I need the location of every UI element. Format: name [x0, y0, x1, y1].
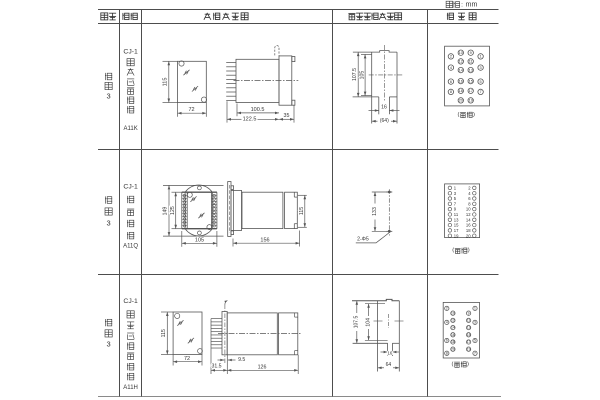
- svg-text:15: 15: [469, 79, 473, 83]
- svg-text:107.5: 107.5: [352, 68, 358, 81]
- svg-text:3: 3: [474, 321, 476, 325]
- svg-text:3: 3: [107, 219, 111, 228]
- svg-text:A11K: A11K: [123, 126, 137, 132]
- svg-text:1: 1: [480, 55, 482, 59]
- svg-text:9.5: 9.5: [238, 357, 245, 363]
- svg-text:10: 10: [466, 207, 471, 212]
- svg-text:(: (: [458, 112, 460, 118]
- svg-text::: :: [461, 1, 463, 8]
- svg-text:CJ-1: CJ-1: [123, 49, 138, 56]
- svg-text:19: 19: [469, 99, 473, 103]
- svg-text:115: 115: [162, 78, 168, 87]
- svg-text:125: 125: [170, 206, 176, 215]
- svg-text:(: (: [452, 248, 454, 254]
- svg-text:A11Q: A11Q: [123, 244, 138, 250]
- svg-text:CJ-1: CJ-1: [123, 184, 138, 191]
- svg-text:100.5: 100.5: [251, 107, 265, 113]
- svg-text:3: 3: [107, 340, 111, 349]
- svg-text:3: 3: [107, 91, 111, 100]
- svg-text:5: 5: [480, 80, 482, 84]
- svg-text:156: 156: [260, 238, 269, 244]
- svg-text:14: 14: [466, 217, 471, 222]
- svg-text:4: 4: [446, 321, 448, 325]
- svg-text:10: 10: [459, 51, 463, 55]
- svg-text:7: 7: [474, 351, 476, 355]
- svg-text:105: 105: [195, 238, 204, 244]
- svg-text:9: 9: [468, 311, 470, 315]
- svg-text:2: 2: [446, 307, 448, 311]
- svg-text:18: 18: [459, 89, 463, 93]
- svg-text:5: 5: [474, 339, 476, 343]
- svg-text:9: 9: [470, 51, 472, 55]
- svg-text:1: 1: [474, 307, 476, 311]
- svg-text:): ): [473, 112, 475, 118]
- svg-text:15: 15: [454, 223, 459, 228]
- svg-text:2: 2: [450, 55, 452, 59]
- svg-text:16: 16: [466, 223, 471, 228]
- svg-text:12: 12: [459, 60, 463, 64]
- svg-text:133: 133: [372, 207, 378, 216]
- svg-text:20: 20: [459, 99, 463, 103]
- svg-text:13: 13: [467, 326, 471, 330]
- svg-text:3: 3: [480, 66, 482, 70]
- svg-text:7: 7: [480, 90, 482, 94]
- svg-text:149: 149: [163, 207, 169, 216]
- svg-text:20: 20: [466, 233, 471, 238]
- svg-text:17: 17: [467, 340, 471, 344]
- svg-text:104: 104: [365, 318, 371, 327]
- svg-text:20: 20: [451, 347, 455, 351]
- svg-text:8: 8: [450, 90, 452, 94]
- svg-text:): ): [468, 248, 470, 254]
- svg-text:14: 14: [459, 68, 463, 72]
- svg-text:(64): (64): [380, 118, 389, 124]
- svg-text:16: 16: [451, 333, 455, 337]
- svg-text:11: 11: [454, 212, 459, 217]
- svg-text:122.5: 122.5: [243, 116, 257, 122]
- svg-text:8: 8: [446, 351, 448, 355]
- svg-text:2-Φ5: 2-Φ5: [357, 236, 369, 242]
- svg-text:18: 18: [466, 228, 471, 233]
- svg-text:12: 12: [466, 212, 471, 217]
- svg-text:17: 17: [454, 228, 459, 233]
- svg-text:4: 4: [450, 66, 452, 70]
- svg-text:): ): [467, 361, 469, 367]
- svg-text:A11H: A11H: [123, 385, 138, 391]
- svg-text:115: 115: [161, 329, 167, 337]
- svg-text:12: 12: [451, 319, 455, 323]
- svg-text:64: 64: [386, 362, 392, 368]
- svg-text:72: 72: [184, 356, 190, 362]
- svg-text:13: 13: [469, 68, 473, 72]
- svg-text:19: 19: [454, 233, 459, 238]
- svg-text:6: 6: [450, 80, 452, 84]
- svg-text:11: 11: [467, 319, 471, 323]
- svg-text:(: (: [452, 361, 454, 367]
- svg-text:126: 126: [258, 365, 267, 371]
- svg-text:16: 16: [459, 79, 463, 83]
- svg-text:115: 115: [299, 207, 305, 215]
- svg-text:10: 10: [451, 311, 455, 315]
- svg-text:mm: mm: [466, 1, 478, 8]
- svg-text:19: 19: [467, 347, 471, 351]
- svg-text:14: 14: [451, 326, 455, 330]
- svg-text:18: 18: [451, 340, 455, 344]
- svg-text:CJ-1: CJ-1: [123, 298, 138, 305]
- svg-text:72: 72: [188, 107, 194, 113]
- svg-text:16: 16: [381, 105, 387, 111]
- svg-text:15: 15: [467, 333, 471, 337]
- svg-text:13: 13: [454, 217, 459, 222]
- svg-text:31.5: 31.5: [211, 363, 221, 369]
- svg-text:16: 16: [387, 350, 392, 355]
- svg-text:35: 35: [284, 113, 290, 119]
- svg-text:11: 11: [469, 60, 473, 64]
- svg-text:107.5: 107.5: [353, 316, 359, 329]
- svg-text:17: 17: [469, 89, 473, 93]
- svg-text:6: 6: [446, 339, 448, 343]
- svg-text:105: 105: [359, 71, 365, 80]
